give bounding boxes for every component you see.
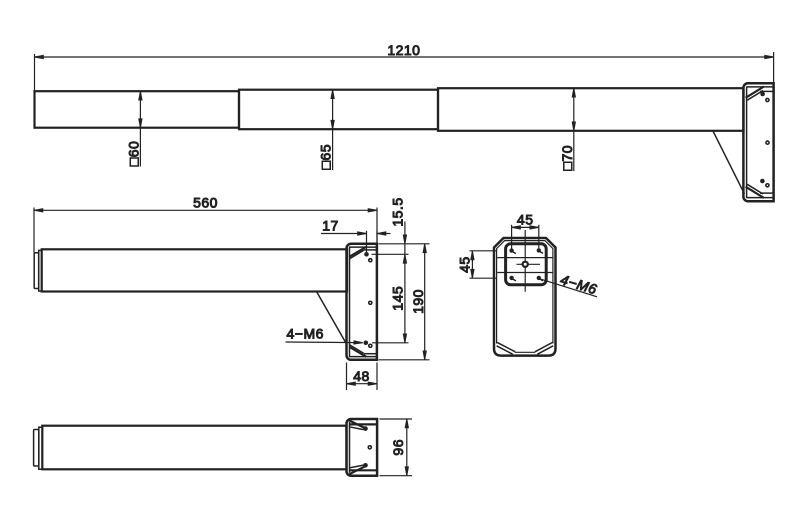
svg-text:1210: 1210 xyxy=(387,42,420,58)
svg-text:96: 96 xyxy=(390,439,406,456)
svg-text:□65: □65 xyxy=(318,144,334,170)
svg-text:48: 48 xyxy=(353,368,370,384)
svg-text:190: 190 xyxy=(410,289,426,314)
svg-text:17: 17 xyxy=(322,218,339,234)
svg-text:45: 45 xyxy=(517,212,534,228)
svg-text:□70: □70 xyxy=(559,145,575,171)
svg-text:560: 560 xyxy=(193,194,218,210)
svg-text:4−M6: 4−M6 xyxy=(287,326,324,342)
svg-text:□60: □60 xyxy=(125,141,141,167)
svg-text:145: 145 xyxy=(389,286,405,311)
svg-text:15.5: 15.5 xyxy=(390,197,406,226)
svg-text:45: 45 xyxy=(457,256,473,273)
